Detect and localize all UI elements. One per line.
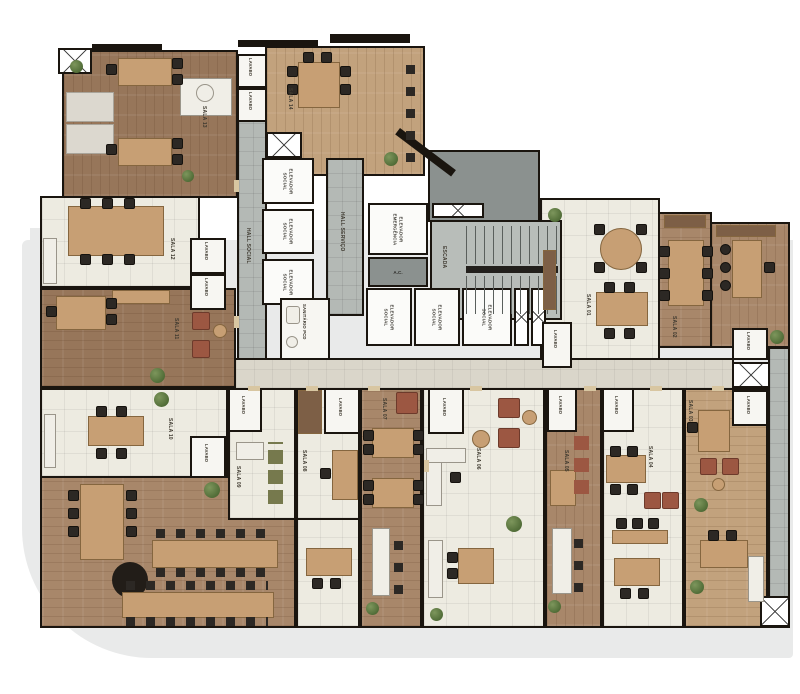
office-chair (106, 144, 117, 155)
label-hall-servico: HALL SERVIÇO (339, 212, 344, 251)
label-sala14: SALA 14 (287, 88, 292, 110)
plant (694, 498, 708, 512)
plant (770, 330, 784, 344)
door-gap (368, 386, 380, 391)
label-hall-social: HALL SOCIAL (245, 228, 250, 264)
office-chair (46, 306, 57, 317)
office-chair (340, 84, 351, 95)
label-lavabo: LAVABO (248, 58, 252, 76)
office-chair (126, 490, 137, 501)
office-chair (126, 508, 137, 519)
desk (118, 58, 172, 86)
office-chair (106, 64, 117, 75)
meeting-table (298, 62, 340, 108)
office-chair (102, 198, 113, 209)
coffee-table (712, 478, 725, 491)
office-chair (687, 422, 698, 433)
door-gap (234, 180, 239, 192)
office-chair (303, 52, 314, 63)
door-gap (306, 386, 318, 391)
office-chair (116, 448, 127, 459)
chair-row (126, 617, 268, 626)
shelf (543, 250, 556, 310)
counter (426, 448, 466, 463)
label-lavabo: LAVABO (614, 396, 618, 414)
office-chair (363, 444, 374, 455)
elevator-cabin-4: ELEVADOR SOCIAL (366, 288, 412, 346)
office-chair (627, 484, 638, 495)
elevator-cabin-1: ELEVADOR SOCIAL (262, 158, 314, 204)
label-lavabo: LAVABO (746, 332, 750, 350)
office-chair (636, 262, 647, 273)
cabinet (664, 215, 706, 228)
office-chair (68, 526, 79, 537)
desk (596, 292, 648, 326)
office-chair (126, 526, 137, 537)
label-lavabo: LAVABO (338, 398, 342, 416)
desk (236, 442, 264, 460)
label-sala08: SALA 08 (301, 450, 306, 472)
label-escada: ESCADA (441, 246, 446, 268)
office-chair (340, 66, 351, 77)
label-sanitario-pcd: SANITÁRIO PCD (302, 304, 306, 340)
office-chair (106, 298, 117, 309)
door-gap (712, 386, 724, 391)
lounge-chairs (574, 430, 589, 494)
chair-row (406, 58, 415, 162)
long-table (80, 484, 124, 560)
guest-chair (720, 280, 731, 291)
meeting-table (68, 206, 164, 256)
desk (550, 470, 576, 506)
office-chair (616, 518, 627, 529)
coffee-table (213, 324, 227, 338)
office-chair (638, 588, 649, 599)
door-gap (234, 316, 239, 328)
office-chair (659, 290, 670, 301)
label-sala12: SALA 12 (169, 238, 174, 260)
wall-stub (92, 44, 162, 51)
office-chair (702, 290, 713, 301)
door-gap (650, 386, 662, 391)
door-gap (424, 460, 429, 472)
office-chair (627, 446, 638, 457)
label-sala02: SALA 02 (671, 316, 676, 338)
office-chair (413, 480, 424, 491)
office-chair (764, 262, 775, 273)
chair-row (126, 581, 268, 590)
toilet (286, 306, 300, 324)
office-chair (413, 430, 424, 441)
label-sala03: SALA 03 (687, 400, 692, 422)
office-chair (648, 518, 659, 529)
office-chair (124, 254, 135, 265)
label-lavabo: LAVABO (746, 396, 750, 414)
round-sink (196, 84, 214, 102)
plant (690, 580, 704, 594)
workbench (122, 592, 274, 618)
office-chair (413, 444, 424, 455)
office-chair (594, 262, 605, 273)
office-chair (106, 314, 117, 325)
office-chair (330, 578, 341, 589)
office-chair (116, 406, 127, 417)
plant (150, 368, 165, 383)
office-chair (450, 472, 461, 483)
office-chair (620, 588, 631, 599)
armchair (192, 312, 210, 330)
office-chair (80, 198, 91, 209)
plant (506, 516, 522, 532)
elevator-cabin-2: ELEVADOR SOCIAL (262, 209, 314, 254)
door-gap (584, 386, 596, 391)
armchair (396, 392, 418, 414)
desk (372, 478, 414, 508)
elevator-label: ELEVADOR SOCIAL (283, 215, 294, 249)
office-chair (702, 246, 713, 257)
floor-plan: ELEVADOR SOCIAL ELEVADOR SOCIAL ELEVADOR… (0, 0, 800, 694)
office-chair (80, 254, 91, 265)
office-chair (659, 246, 670, 257)
office-chair (610, 484, 621, 495)
desk (118, 138, 172, 166)
elevator-label: ELEVADOR SOCIAL (283, 265, 294, 299)
office-chair (172, 138, 183, 149)
armchair (722, 458, 739, 475)
workbench (152, 540, 278, 568)
plant (366, 602, 379, 615)
label-lavabo: LAVABO (204, 278, 208, 296)
elevator-label: ELEVADOR SOCIAL (384, 300, 395, 334)
desk (698, 410, 730, 452)
office-chair (708, 530, 719, 541)
credenza (66, 92, 114, 122)
desk (606, 455, 646, 483)
plant (154, 392, 169, 407)
office-chair (632, 518, 643, 529)
office-chair (320, 468, 331, 479)
hall-servico (326, 158, 364, 316)
plant (384, 152, 398, 166)
long-table (552, 528, 572, 594)
office-chair (447, 568, 458, 579)
elevator-label: ELEVADOR SOCIAL (432, 300, 443, 334)
coffee-table (522, 410, 537, 425)
office-chair (363, 494, 374, 505)
office-chair (726, 530, 737, 541)
label-lavabo: LAVABO (204, 444, 208, 462)
office-chair (447, 552, 458, 563)
guest-chair (720, 262, 731, 273)
label-lavabo: LAVABO (442, 398, 446, 416)
sideboard (612, 530, 668, 544)
plant (182, 170, 194, 182)
shelf (716, 225, 776, 237)
sofa (498, 428, 520, 448)
desk (458, 548, 494, 584)
meeting-table (668, 240, 704, 306)
desk (372, 428, 414, 458)
whiteboard (44, 414, 56, 468)
chair-row (574, 534, 583, 592)
label-lavabo: LAVABO (553, 330, 557, 348)
office-chair (172, 154, 183, 165)
chair-row (394, 534, 403, 594)
door-gap (248, 386, 260, 391)
plant (70, 60, 83, 73)
office-chair (624, 282, 635, 293)
sink (286, 336, 298, 348)
elevator-cabin-5: ELEVADOR SOCIAL (414, 288, 460, 346)
office-chair (68, 490, 79, 501)
label-sala07: SALA 07 (381, 398, 386, 420)
ac-room: A.C. (368, 257, 428, 287)
plant (548, 208, 562, 222)
office-chair (413, 494, 424, 505)
office-chair (594, 224, 605, 235)
label-sala09: SALA 09 (235, 466, 240, 488)
office-chair (124, 198, 135, 209)
office-chair (604, 282, 615, 293)
office-chair (102, 254, 113, 265)
desk (732, 240, 762, 298)
label-sala04: SALA 04 (647, 446, 652, 468)
chair-row (156, 529, 274, 538)
armchair (644, 492, 661, 509)
office-chair (172, 58, 183, 69)
office-chair (312, 578, 323, 589)
long-table (372, 528, 390, 596)
duct-shaft (266, 132, 302, 158)
wall-stub (238, 40, 318, 47)
office-chair (363, 430, 374, 441)
label-lavabo: LAVABO (204, 242, 208, 260)
elevator-label: ELEVADOR SOCIAL (283, 164, 294, 198)
closet (298, 390, 322, 434)
office-chair (659, 268, 670, 279)
cabinet (43, 238, 57, 284)
armchair (192, 340, 210, 358)
label-sala05: SALA 05 (563, 450, 568, 472)
label-sala01: SALA 01 (585, 294, 590, 316)
door-gap (470, 386, 482, 391)
side-table (472, 430, 490, 448)
duct-shaft (760, 596, 790, 627)
desk (614, 558, 660, 586)
desk (56, 296, 106, 330)
office-chair (96, 406, 107, 417)
office-chair (68, 508, 79, 519)
office-chair (363, 480, 374, 491)
duct-shaft (732, 362, 770, 388)
office-chair (287, 66, 298, 77)
chair-row (156, 568, 274, 577)
elevator-emergency: ELEVADOR EMERGÊNCIA (368, 203, 428, 255)
room-sala07 (360, 388, 422, 628)
sofa (498, 398, 520, 418)
guest-chair (720, 244, 731, 255)
desk (700, 540, 748, 568)
plant (430, 608, 443, 621)
label-sala13: SALA 13 (201, 106, 206, 128)
duct-shaft (432, 203, 484, 218)
label-sala11: SALA 11 (173, 318, 178, 340)
ac-label: A.C. (393, 270, 402, 275)
office-chair (610, 446, 621, 457)
office-chair (636, 224, 647, 235)
office-chair (172, 74, 183, 85)
desk (88, 416, 144, 446)
plant (548, 600, 561, 613)
office-chair (96, 448, 107, 459)
desk (306, 548, 352, 576)
label-lavabo: LAVABO (248, 92, 252, 110)
elevator-emergency-label: ELEVADOR EMERGÊNCIA (393, 212, 404, 246)
right-hall (768, 347, 790, 628)
sideboard (112, 290, 170, 304)
office-chair (604, 328, 615, 339)
counter (428, 540, 443, 598)
whiteboard (748, 556, 764, 602)
office-chair (702, 268, 713, 279)
label-lavabo: LAVABO (558, 396, 562, 414)
label-sala10: SALA 10 (167, 418, 172, 440)
label-sala06: SALA 06 (475, 448, 480, 470)
label-lavabo: LAVABO (241, 396, 245, 414)
office-chair (624, 328, 635, 339)
lounge-chairs (268, 442, 283, 504)
wall-stub (330, 34, 410, 43)
desk (332, 450, 358, 500)
plant (204, 482, 220, 498)
armchair (700, 458, 717, 475)
office-chair (321, 52, 332, 63)
armchair (662, 492, 679, 509)
